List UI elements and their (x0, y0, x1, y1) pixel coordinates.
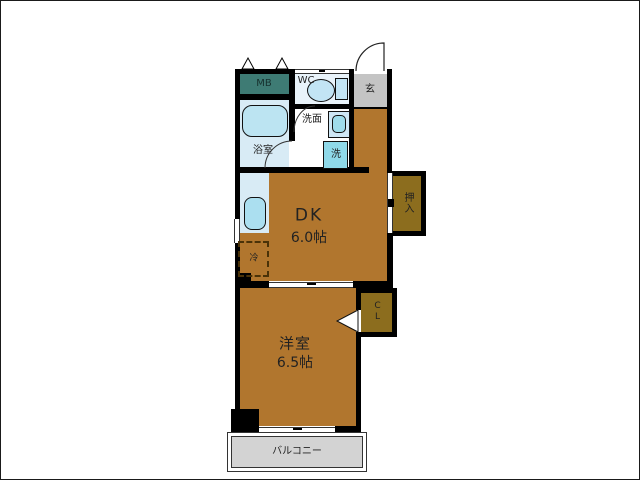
wall-oshiire-bottom (392, 231, 426, 236)
cl-door-opening (356, 310, 361, 332)
roof-vent-triangle-left (242, 58, 254, 69)
wall-dk-top (235, 167, 369, 173)
dk-label: DK (295, 208, 323, 225)
wall-mb-bottom (235, 94, 291, 100)
dk-west-sliding-door (269, 282, 353, 288)
wall-left-upper (235, 69, 240, 219)
wall-oshiire-right (421, 171, 426, 236)
western-room-label: 洋室 (279, 337, 311, 352)
western-room-size: 6.5帖 (277, 356, 313, 370)
wc-window (295, 69, 349, 74)
wall-dk-west-right (353, 281, 393, 288)
entrance-door-arc (356, 43, 384, 71)
oshiire-sliding-door (387, 173, 393, 233)
washroom-label: 洗面 (302, 115, 322, 125)
bathtub (242, 105, 288, 137)
divider-entrance-hall (354, 107, 387, 109)
pillar-west-corner (231, 409, 259, 433)
cl-label: CL (373, 301, 382, 323)
kitchen-window (234, 219, 240, 243)
dk-size: 6.0帖 (291, 231, 327, 245)
bathroom-label: 浴室 (253, 146, 273, 156)
wall-wc-bottom (295, 104, 354, 109)
wall-right-mid (387, 233, 393, 288)
balcony-label: バルコニー (272, 447, 322, 457)
roof-vent-triangle-right (276, 58, 288, 69)
wall-right-upper (387, 69, 392, 173)
meter-box-label: MB (256, 79, 272, 89)
kitchen-sink (244, 197, 266, 230)
wc-label: WC (298, 76, 315, 86)
toilet-tank (335, 78, 348, 100)
washbasin-bowl (332, 115, 346, 133)
floor-plan: MB WC 玄 浴室 洗面 洗 冷 DK 6.0帖 押入 洋室 6.5帖 CL … (0, 0, 640, 480)
entrance-label: 玄 (365, 85, 375, 95)
entrance-door-opening (354, 69, 387, 74)
refrigerator-label: 冷 (249, 255, 258, 264)
washer-label: 洗 (331, 150, 341, 160)
oshiire-label: 押入 (402, 192, 412, 214)
hallway-area (354, 109, 387, 173)
